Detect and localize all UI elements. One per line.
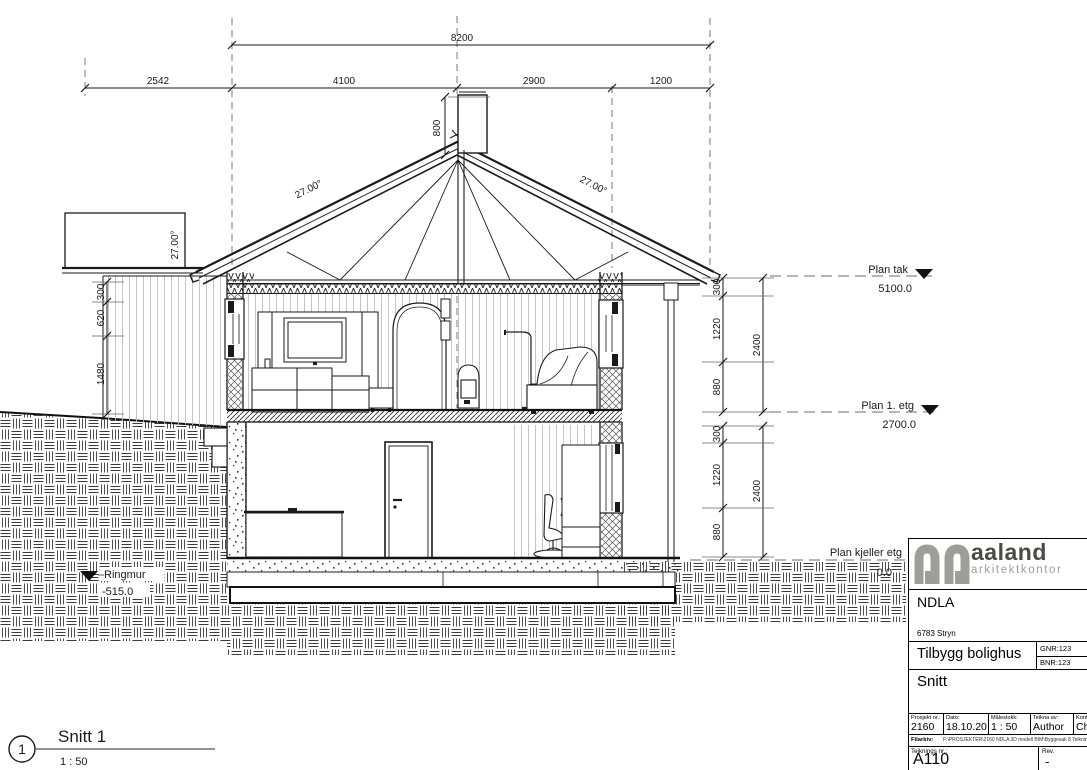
view-number: 1 (18, 741, 26, 757)
basement-door (385, 442, 432, 558)
arched-door-opening (393, 303, 446, 410)
title-block-fields-row: Prosjekt nr.: 2160 Dato: 18.10.20 Målest… (909, 713, 1087, 734)
basement-counter (244, 508, 344, 557)
chimney (458, 92, 487, 283)
field-checked-by: Kontroll: Checker (1074, 714, 1087, 734)
level-first-value: 2700.0 (882, 419, 916, 431)
field-drawn-by: Teikna av: Author (1031, 714, 1074, 734)
first-floor-slab (227, 410, 622, 422)
foundation (227, 558, 680, 603)
field-scale-value: 1 : 50 (991, 721, 1017, 733)
level-basement-label: Plan kjeller etg (830, 547, 902, 559)
title-block-client-row: NDLA 6783 Stryn (909, 589, 1087, 641)
dim-chimney: 800 (432, 119, 443, 136)
title-block-file-row: Filarkiv: F:\PROSJEKTER\2160 NDLA 3D mod… (909, 734, 1087, 746)
field-checked-by-value: Checker (1076, 721, 1087, 733)
title-block-drawing-title-row: Snitt (909, 669, 1087, 713)
level-footing-value: -515.0 (102, 586, 133, 598)
dim-rl1: 300 (712, 425, 723, 442)
side-table (369, 388, 393, 412)
view-title: Snitt 1 (58, 727, 106, 746)
gnr-bnr-cell: GNR:123 BNR:123 (1036, 642, 1087, 669)
field-date: Dato: 18.10.20 (944, 714, 989, 734)
angle-right-slope: 27.00° (578, 174, 609, 197)
title-block-project-row: Tilbygg bolighus GNR:123 BNR:123 (909, 641, 1087, 669)
dim-ru3: 880 (712, 378, 723, 395)
angle-annex: 27.00° (170, 230, 181, 259)
logo-name: aaland (971, 541, 1062, 564)
dim-w3: 2900 (523, 76, 546, 87)
level-first-label: Plan 1. etg (861, 400, 914, 412)
client-name: NDLA (917, 594, 954, 610)
dim-left2: 620 (96, 309, 107, 326)
basement-desk (562, 445, 600, 558)
level-marker-first (921, 405, 939, 415)
dim-w4: 1200 (650, 76, 673, 87)
file-archive-label: Filarkiv: (911, 737, 933, 743)
angle-left-slope: 27.00° (293, 178, 324, 201)
field-date-value: 18.10.20 (946, 721, 987, 733)
field-project-no-value: 2160 (911, 721, 934, 733)
view-title-marker: 1 Snitt 1 1 : 50 (9, 727, 215, 768)
level-lines (690, 276, 938, 560)
aaland-logo-icon (914, 544, 970, 589)
file-archive-path: F:\PROSJEKTER\2160 NDLA 3D modell BIM\By… (943, 737, 1087, 743)
title-block-number-row: Teiknings nr.: A110 Rev. - (909, 746, 1087, 770)
drawing-title: Snitt (917, 673, 947, 690)
left-siding-wall (103, 276, 227, 427)
level-labels: Plan tak 5100.0 Plan 1. etg 2700.0 Plan … (830, 264, 939, 579)
field-scale: Målestokk: 1 : 50 (989, 714, 1031, 734)
drawing-no: A110 (913, 751, 949, 769)
dim-w1: 2542 (147, 76, 170, 87)
dim-ru2: 1220 (712, 317, 723, 340)
title-block-logo-row: aaland arkitektkontor (909, 539, 1087, 589)
level-basement-value: 0.0 (877, 567, 892, 579)
field-project-no: Prosjekt nr.: 2160 (909, 714, 944, 734)
field-drawn-by-value: Author (1033, 721, 1064, 733)
architectural-section-sheet: 8200 2542 4100 2900 1200 800 300 620 148… (0, 0, 1087, 770)
downspout (622, 283, 700, 562)
dim-w2: 4100 (333, 76, 356, 87)
level-footing-label: Ringmur (104, 569, 146, 581)
roof (190, 130, 720, 284)
level-roof-value: 5100.0 (878, 283, 912, 295)
dim-ru-total: 2400 (752, 333, 763, 356)
ground-hatch-below (227, 603, 675, 655)
wood-stove (458, 365, 479, 408)
dim-rl2: 1220 (712, 463, 723, 486)
dim-left1: 300 (96, 283, 107, 300)
title-block: aaland arkitektkontor NDLA 6783 Stryn Ti… (908, 538, 1087, 770)
client-address: 6783 Stryn (917, 629, 956, 638)
bnr-value: BNR:123 (1040, 658, 1070, 667)
dim-rl3: 880 (712, 523, 723, 540)
revision-cell: Rev. - (1038, 747, 1087, 770)
level-marker-roof (915, 269, 933, 279)
logo-subtitle: arkitektkontor (971, 565, 1062, 577)
gnr-value: GNR:123 (1040, 644, 1071, 653)
revision-value: - (1045, 754, 1049, 769)
project-name: Tilbygg bolighus (917, 646, 1021, 662)
ground-hatch-left (0, 413, 227, 641)
dim-ru1: 300 (712, 278, 723, 295)
dim-overall: 8200 (451, 33, 474, 44)
level-roof-label: Plan tak (868, 264, 908, 276)
view-scale: 1 : 50 (60, 756, 88, 768)
right-wall-basement (599, 422, 623, 558)
dim-left3: 1480 (96, 362, 107, 385)
annex-building (62, 213, 203, 273)
dim-rl-total: 2400 (752, 479, 763, 502)
